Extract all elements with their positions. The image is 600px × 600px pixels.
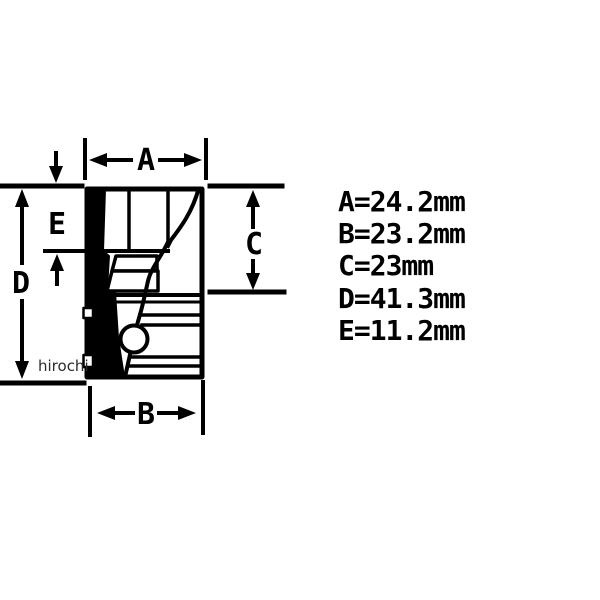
- socket-drawing: [84, 189, 203, 377]
- collar-step-1: [112, 256, 157, 271]
- dim-a-label: A: [137, 143, 155, 178]
- dim-e-label: E: [48, 207, 66, 242]
- measurement-line-c: C=23mm: [338, 249, 433, 282]
- measurement-line-e: E=11.2mm: [338, 314, 465, 347]
- watermark-text: hirochi: [38, 357, 89, 375]
- product-dimension-image: A D E C B A=24.: [0, 0, 600, 600]
- dim-c-label: C: [245, 227, 263, 262]
- left-groove-notch-upper: [84, 308, 94, 318]
- dim-b-label: B: [137, 397, 155, 432]
- socket-diagram-canvas: A D E C B A=24.: [0, 0, 600, 600]
- measurement-line-a: A=24.2mm: [338, 185, 465, 218]
- dim-d-label: D: [12, 266, 30, 301]
- measurement-line-b: B=23.2mm: [338, 217, 465, 250]
- detent-ball-circle: [121, 326, 148, 353]
- measurement-line-d: D=41.3mm: [338, 282, 465, 315]
